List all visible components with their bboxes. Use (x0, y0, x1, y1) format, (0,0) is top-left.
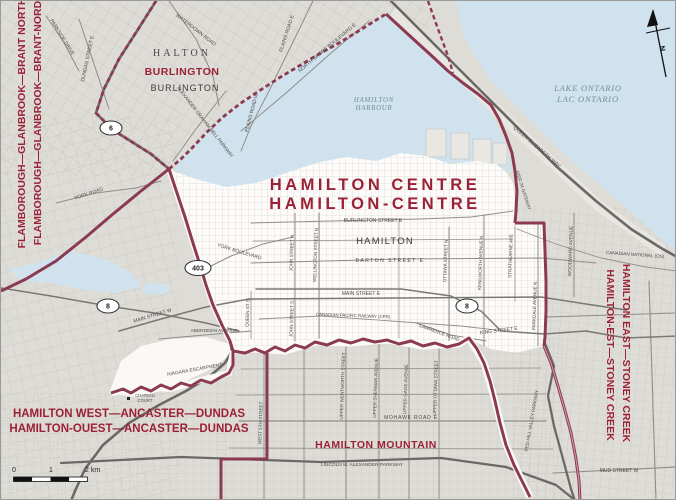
label-queen-s: QUEEN ST S (245, 299, 251, 327)
label-barton: BARTON STREET E (356, 258, 425, 264)
label-flamborough-en: FLAMBOROUGH—GLANBROOK—BRANT NORTH (16, 1, 28, 248)
electoral-district-map: 6 403 8 8 HAMILTON CENTRE HAMILTON-CENTR… (0, 0, 676, 500)
shield-hwy403: 403 (185, 261, 211, 276)
label-hamilton-centre-fr: HAMILTON-CENTRE (269, 195, 480, 213)
label-chateau-line2: COURT (138, 398, 153, 403)
shield-hwy403-number: 403 (192, 266, 204, 273)
label-hamilton-west-en: HAMILTON WEST—ANCASTER—DUNDAS (13, 408, 245, 420)
label-mohawk: MOHAWK ROAD E (384, 415, 438, 421)
label-flamborough-fr: FLAMBOROUGH—GLANBROOK—BRANT-NORD (32, 1, 44, 245)
scale-label-2km: 2 km (85, 467, 100, 474)
label-harbour-line2: HARBOUR (355, 105, 393, 112)
shield-hwy6: 6 (100, 121, 122, 135)
map-canvas: 6 403 8 8 HAMILTON CENTRE HAMILTON-CENTR… (1, 1, 676, 500)
label-aberdeen: ABERDEEN AVENUE (191, 328, 238, 334)
label-lake-ontario-en: LAKE ONTARIO (553, 83, 622, 93)
label-harbour-line1: HAMILTON (353, 97, 394, 104)
shield-hwy8-east-number: 8 (465, 304, 469, 311)
scale-label-1: 1 (49, 467, 53, 474)
label-main-e: MAIN STREET E (342, 291, 381, 297)
shield-hwy8-west: 8 (97, 299, 119, 313)
label-mud: MUD STREET W (600, 468, 639, 474)
pond-water (142, 283, 170, 295)
label-burlington-city: BURLINGTON (151, 83, 220, 93)
chateau-court-marker (127, 397, 130, 400)
label-hamilton-centre-en: HAMILTON CENTRE (270, 176, 480, 194)
scale-label-0: 0 (12, 467, 16, 474)
label-hamilton-city: HAMILTON (356, 236, 414, 247)
label-hamilton-east-en: HAMILTON EAST—STONEY CREEK (620, 264, 632, 443)
shield-hwy6-number: 6 (109, 126, 113, 133)
shield-hwy8-east: 8 (456, 299, 478, 313)
label-burlington-district: BURLINGTON (145, 66, 220, 78)
label-burlington-st: BURLINGTON STREET E (344, 218, 403, 224)
shield-hwy8-west-number: 8 (106, 304, 110, 311)
label-hamilton-west-fr: HAMILTON-OUEST—ANCASTER—DUNDAS (9, 423, 248, 435)
label-lake-ontario-fr: LAC ONTARIO (556, 94, 619, 104)
label-hamilton-mountain: HAMILTON MOUNTAIN (315, 439, 437, 451)
label-linc: LINCOLN M. ALEXANDER PARKWAY (321, 462, 404, 468)
label-halton: HALTON (153, 48, 211, 59)
label-hamilton-east-fr: HAMILTON-EST—STONEY CREEK (604, 269, 616, 441)
